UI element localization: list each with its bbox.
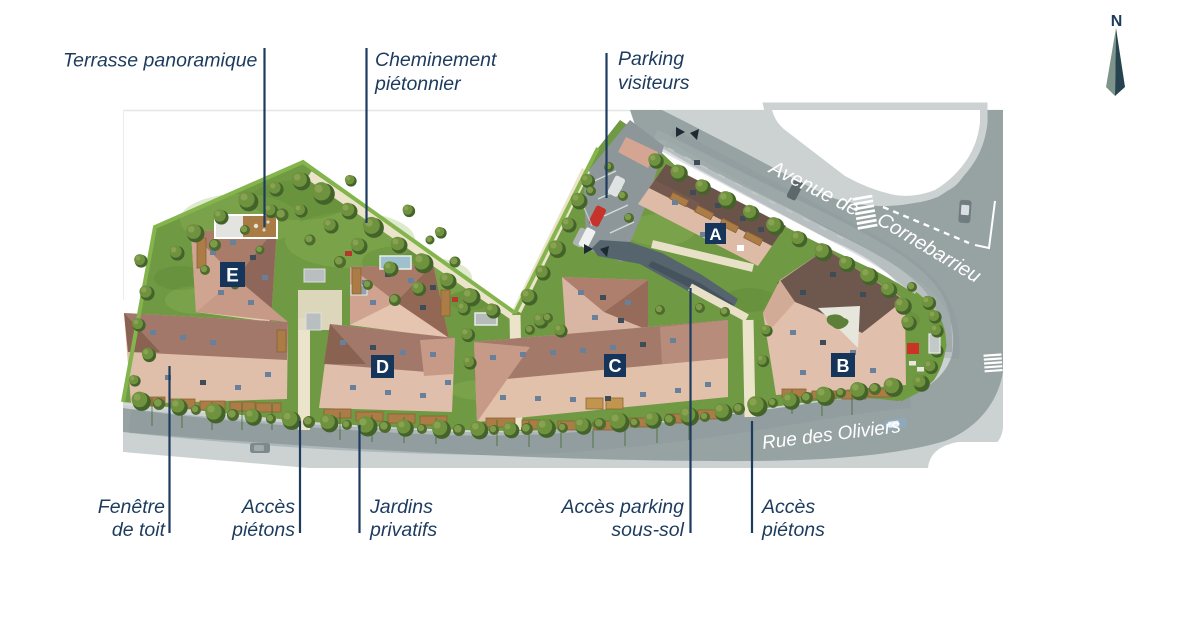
svg-text:E: E [226, 266, 239, 287]
svg-text:A: A [709, 225, 721, 244]
svg-text:de toit: de toit [112, 519, 167, 541]
svg-text:C: C [609, 356, 622, 376]
svg-text:piétons: piétons [761, 519, 825, 541]
svg-text:Parking: Parking [618, 48, 684, 70]
svg-text:B: B [837, 356, 850, 376]
svg-text:Accès: Accès [241, 496, 295, 518]
svg-text:Cheminement: Cheminement [375, 49, 498, 71]
svg-text:Accès: Accès [761, 496, 815, 518]
svg-text:piétons: piétons [231, 519, 295, 541]
svg-text:privatifs: privatifs [369, 519, 437, 541]
svg-text:piétonnier: piétonnier [374, 73, 462, 95]
svg-text:D: D [376, 357, 389, 377]
svg-text:Fenêtre: Fenêtre [98, 496, 165, 518]
svg-text:visiteurs: visiteurs [618, 72, 690, 94]
svg-text:Terrasse panoramique: Terrasse panoramique [63, 50, 258, 72]
svg-text:sous-sol: sous-sol [611, 519, 684, 541]
svg-text:N: N [1111, 13, 1123, 30]
svg-text:Accès parking: Accès parking [561, 496, 685, 518]
svg-text:Jardins: Jardins [369, 496, 433, 518]
